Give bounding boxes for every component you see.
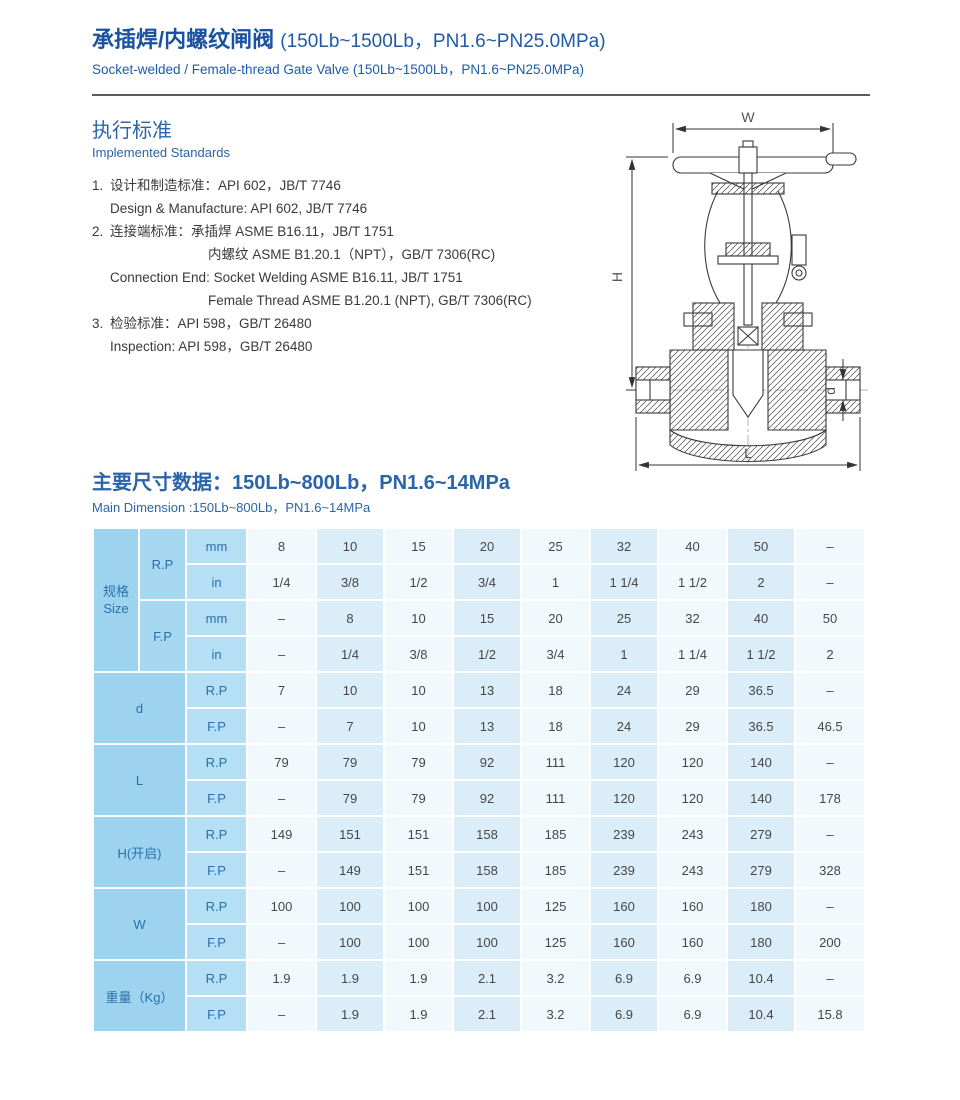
standards-line-number: 1. <box>92 174 103 197</box>
table-value-cell: 151 <box>384 816 453 852</box>
table-value-cell: 239 <box>590 852 658 888</box>
table-value-cell: 50 <box>795 600 865 636</box>
table-value-cell: 15 <box>453 600 521 636</box>
table-value-cell: 185 <box>521 852 590 888</box>
table-value-cell: 178 <box>795 780 865 816</box>
dim-label-L: L <box>744 445 752 461</box>
standards-line: Design & Manufacture: API 602, JB/T 7746 <box>92 197 597 220</box>
table-value-cell: – <box>795 672 865 708</box>
table-value-cell: 1.9 <box>247 960 316 996</box>
standards-line-text: 检验标准：API 598，GB/T 26480 <box>110 316 312 331</box>
table-value-cell: – <box>247 852 316 888</box>
table-value-cell: – <box>247 636 316 672</box>
table-value-cell: 1 1/4 <box>658 636 727 672</box>
table-row: F.P–149151158185239243279328 <box>93 852 865 888</box>
table-row: F.P–7101318242936.546.5 <box>93 708 865 744</box>
table-value-cell: 151 <box>384 852 453 888</box>
table-unit-header: in <box>186 564 247 600</box>
table-unit-header: mm <box>186 528 247 564</box>
table-value-cell: 40 <box>658 528 727 564</box>
table-value-cell: 200 <box>795 924 865 960</box>
table-value-cell: 10 <box>316 672 384 708</box>
table-row: H(开启)R.P149151151158185239243279– <box>93 816 865 852</box>
standards-line: 1.设计和制造标准：API 602，JB/T 7746 <box>92 174 597 197</box>
table-value-cell: 158 <box>453 852 521 888</box>
table-value-cell: 6.9 <box>658 996 727 1032</box>
table-value-cell: 111 <box>521 780 590 816</box>
table-value-cell: 79 <box>316 780 384 816</box>
table-value-cell: 8 <box>247 528 316 564</box>
table-value-cell: – <box>247 708 316 744</box>
table-value-cell: – <box>247 924 316 960</box>
table-value-cell: – <box>795 744 865 780</box>
table-value-cell: 10 <box>384 672 453 708</box>
table-value-cell: 180 <box>727 888 795 924</box>
table-value-cell: 239 <box>590 816 658 852</box>
standards-line: Female Thread ASME B1.20.1 (NPT), GB/T 7… <box>92 289 597 312</box>
table-value-cell: 1.9 <box>384 960 453 996</box>
table-value-cell: 149 <box>247 816 316 852</box>
table-value-cell: – <box>795 960 865 996</box>
table-unit-header: R.P <box>186 960 247 996</box>
dimension-table: 规格 SizeR.Pmm810152025324050–in1/43/81/23… <box>92 527 866 1033</box>
table-unit-header: R.P <box>186 888 247 924</box>
table-group-header: d <box>93 672 186 744</box>
table-value-cell: 160 <box>590 888 658 924</box>
table-value-cell: 10.4 <box>727 996 795 1032</box>
table-value-cell: 243 <box>658 816 727 852</box>
table-value-cell: 50 <box>727 528 795 564</box>
table-value-cell: 100 <box>453 888 521 924</box>
table-value-cell: 10.4 <box>727 960 795 996</box>
table-value-cell: 36.5 <box>727 672 795 708</box>
table-value-cell: – <box>795 528 865 564</box>
standards-line-text: 内螺纹 ASME B1.20.1（NPT），GB/T 7306(RC) <box>208 247 495 262</box>
table-value-cell: 120 <box>658 780 727 816</box>
table-value-cell: 10 <box>316 528 384 564</box>
standards-line: 内螺纹 ASME B1.20.1（NPT），GB/T 7306(RC) <box>92 243 597 266</box>
table-unit-header: F.P <box>186 996 247 1032</box>
table-value-cell: 151 <box>316 816 384 852</box>
table-value-cell: 3/8 <box>316 564 384 600</box>
table-value-cell: – <box>795 816 865 852</box>
table-row: dR.P710101318242936.5– <box>93 672 865 708</box>
table-value-cell: 2.1 <box>453 996 521 1032</box>
table-value-cell: 10 <box>384 600 453 636</box>
standards-list: 1.设计和制造标准：API 602，JB/T 7746Design & Manu… <box>92 174 597 358</box>
table-value-cell: 18 <box>521 708 590 744</box>
table-value-cell: 100 <box>384 888 453 924</box>
dim-label-W: W <box>741 109 755 125</box>
table-row: F.P–1.91.92.13.26.96.910.415.8 <box>93 996 865 1032</box>
table-value-cell: 79 <box>316 744 384 780</box>
table-value-cell: 6.9 <box>658 960 727 996</box>
table-value-cell: 243 <box>658 852 727 888</box>
standards-line: Inspection: API 598，GB/T 26480 <box>92 335 597 358</box>
table-value-cell: 3.2 <box>521 960 590 996</box>
table-unit-header: R.P <box>186 816 247 852</box>
table-group-header: 规格 Size <box>93 528 139 672</box>
table-value-cell: 120 <box>590 744 658 780</box>
table-value-cell: 160 <box>658 888 727 924</box>
standards-section: 执行标准 Implemented Standards 1.设计和制造标准：API… <box>92 114 597 358</box>
standards-line-number: 3. <box>92 312 103 335</box>
standards-line-text: 连接端标准：承插焊 ASME B16.11，JB/T 1751 <box>110 224 394 239</box>
table-value-cell: 2 <box>795 636 865 672</box>
table-value-cell: 1 <box>590 636 658 672</box>
table-value-cell: – <box>247 600 316 636</box>
table-value-cell: 15.8 <box>795 996 865 1032</box>
table-row: F.P–100100100125160160180200 <box>93 924 865 960</box>
standards-line-text: Connection End: Socket Welding ASME B16.… <box>110 270 463 285</box>
table-group-header: 重量（Kg） <box>93 960 186 1032</box>
table-value-cell: 92 <box>453 780 521 816</box>
table-row: in–1/43/81/23/411 1/41 1/22 <box>93 636 865 672</box>
table-value-cell: 3/4 <box>453 564 521 600</box>
table-value-cell: 20 <box>453 528 521 564</box>
table-subgroup-header: R.P <box>139 528 186 600</box>
table-unit-header: R.P <box>186 672 247 708</box>
table-value-cell: 29 <box>658 672 727 708</box>
table-value-cell: 32 <box>590 528 658 564</box>
table-value-cell: 158 <box>453 816 521 852</box>
table-row: WR.P100100100100125160160180– <box>93 888 865 924</box>
standards-line-text: Female Thread ASME B1.20.1 (NPT), GB/T 7… <box>208 293 532 308</box>
table-row: F.Pmm–810152025324050 <box>93 600 865 636</box>
table-value-cell: 100 <box>316 924 384 960</box>
table-value-cell: 185 <box>521 816 590 852</box>
table-value-cell: 79 <box>384 744 453 780</box>
table-value-cell: 100 <box>316 888 384 924</box>
table-value-cell: 7 <box>247 672 316 708</box>
page-subtitle-en: Socket-welded / Female-thread Gate Valve… <box>92 58 870 78</box>
table-value-cell: 140 <box>727 744 795 780</box>
table-unit-header: F.P <box>186 708 247 744</box>
table-value-cell: 79 <box>247 744 316 780</box>
table-value-cell: 160 <box>658 924 727 960</box>
table-value-cell: 36.5 <box>727 708 795 744</box>
page-title-zh: 承插焊/内螺纹闸阀 <box>92 27 274 52</box>
table-value-cell: 1 1/2 <box>658 564 727 600</box>
table-value-cell: 120 <box>590 780 658 816</box>
table-unit-header: R.P <box>186 744 247 780</box>
table-value-cell: 8 <box>316 600 384 636</box>
table-value-cell: – <box>795 888 865 924</box>
dim-label-H: H <box>609 272 625 282</box>
table-row: 规格 SizeR.Pmm810152025324050– <box>93 528 865 564</box>
dimension-table-body: 规格 SizeR.Pmm810152025324050–in1/43/81/23… <box>93 528 865 1032</box>
page-header: 承插焊/内螺纹闸阀 (150Lb~1500Lb，PN1.6~PN25.0MPa)… <box>92 26 870 78</box>
dimensions-section: 主要尺寸数据：150Lb~800Lb，PN1.6~14MPa Main Dime… <box>92 466 892 1033</box>
table-value-cell: 100 <box>453 924 521 960</box>
table-value-cell: 29 <box>658 708 727 744</box>
table-value-cell: 1.9 <box>384 996 453 1032</box>
table-unit-header: mm <box>186 600 247 636</box>
table-value-cell: 24 <box>590 708 658 744</box>
table-value-cell: 2 <box>727 564 795 600</box>
table-value-cell: 279 <box>727 852 795 888</box>
table-value-cell: 6.9 <box>590 996 658 1032</box>
table-value-cell: 1/2 <box>384 564 453 600</box>
table-value-cell: – <box>247 780 316 816</box>
table-value-cell: 120 <box>658 744 727 780</box>
standards-heading-zh: 执行标准 <box>92 114 597 143</box>
table-value-cell: 20 <box>521 600 590 636</box>
table-value-cell: 46.5 <box>795 708 865 744</box>
table-value-cell: 15 <box>384 528 453 564</box>
table-value-cell: 6.9 <box>590 960 658 996</box>
table-value-cell: 111 <box>521 744 590 780</box>
table-value-cell: 180 <box>727 924 795 960</box>
table-group-header: W <box>93 888 186 960</box>
dimensions-heading-en: Main Dimension :150Lb~800Lb，PN1.6~14MPa <box>92 497 892 516</box>
standards-heading-en: Implemented Standards <box>92 145 597 160</box>
table-value-cell: – <box>795 564 865 600</box>
catalog-page: 承插焊/内螺纹闸阀 (150Lb~1500Lb，PN1.6~PN25.0MPa)… <box>0 0 960 1100</box>
table-value-cell: 24 <box>590 672 658 708</box>
table-value-cell: 13 <box>453 708 521 744</box>
table-unit-header: in <box>186 636 247 672</box>
dimensions-heading-zh: 主要尺寸数据：150Lb~800Lb，PN1.6~14MPa <box>92 466 892 495</box>
table-value-cell: 7 <box>316 708 384 744</box>
table-unit-header: F.P <box>186 852 247 888</box>
table-row: 重量（Kg）R.P1.91.91.92.13.26.96.910.4– <box>93 960 865 996</box>
table-value-cell: 140 <box>727 780 795 816</box>
table-value-cell: 3/4 <box>521 636 590 672</box>
table-group-header: L <box>93 744 186 816</box>
table-value-cell: 125 <box>521 924 590 960</box>
table-unit-header: F.P <box>186 924 247 960</box>
table-value-cell: 2.1 <box>453 960 521 996</box>
table-value-cell: 1.9 <box>316 960 384 996</box>
table-value-cell: 1/4 <box>316 636 384 672</box>
gate-valve-drawing-svg: W H d L <box>598 95 898 485</box>
table-row: LR.P79797992111120120140– <box>93 744 865 780</box>
standards-line: 2.连接端标准：承插焊 ASME B16.11，JB/T 1751 <box>92 220 597 243</box>
standards-line: 3.检验标准：API 598，GB/T 26480 <box>92 312 597 335</box>
page-title-range: (150Lb~1500Lb，PN1.6~PN25.0MPa) <box>280 31 605 52</box>
table-value-cell: 160 <box>590 924 658 960</box>
table-value-cell: 3/8 <box>384 636 453 672</box>
table-value-cell: – <box>247 996 316 1032</box>
table-value-cell: 25 <box>590 600 658 636</box>
standards-line-text: 设计和制造标准：API 602，JB/T 7746 <box>110 178 341 193</box>
table-value-cell: 40 <box>727 600 795 636</box>
table-value-cell: 92 <box>453 744 521 780</box>
table-value-cell: 13 <box>453 672 521 708</box>
standards-line: Connection End: Socket Welding ASME B16.… <box>92 266 597 289</box>
table-value-cell: 1/2 <box>453 636 521 672</box>
table-value-cell: 10 <box>384 708 453 744</box>
table-unit-header: F.P <box>186 780 247 816</box>
table-value-cell: 149 <box>316 852 384 888</box>
standards-line-number: 2. <box>92 220 103 243</box>
table-value-cell: 328 <box>795 852 865 888</box>
table-group-header: H(开启) <box>93 816 186 888</box>
standards-line-text: Design & Manufacture: API 602, JB/T 7746 <box>110 201 367 216</box>
table-value-cell: 1.9 <box>316 996 384 1032</box>
table-value-cell: 79 <box>384 780 453 816</box>
dim-label-d: d <box>822 387 838 395</box>
table-value-cell: 1 1/4 <box>590 564 658 600</box>
table-value-cell: 1 <box>521 564 590 600</box>
table-value-cell: 1/4 <box>247 564 316 600</box>
standards-line-text: Inspection: API 598，GB/T 26480 <box>110 339 312 354</box>
page-title: 承插焊/内螺纹闸阀 (150Lb~1500Lb，PN1.6~PN25.0MPa) <box>92 26 870 55</box>
table-row: F.P–797992111120120140178 <box>93 780 865 816</box>
table-value-cell: 32 <box>658 600 727 636</box>
valve-technical-drawing: W H d L <box>598 95 898 485</box>
table-value-cell: 100 <box>384 924 453 960</box>
table-row: in1/43/81/23/411 1/41 1/22– <box>93 564 865 600</box>
table-value-cell: 1 1/2 <box>727 636 795 672</box>
table-value-cell: 18 <box>521 672 590 708</box>
table-value-cell: 3.2 <box>521 996 590 1032</box>
table-value-cell: 279 <box>727 816 795 852</box>
table-subgroup-header: F.P <box>139 600 186 672</box>
table-value-cell: 25 <box>521 528 590 564</box>
table-value-cell: 125 <box>521 888 590 924</box>
table-value-cell: 100 <box>247 888 316 924</box>
